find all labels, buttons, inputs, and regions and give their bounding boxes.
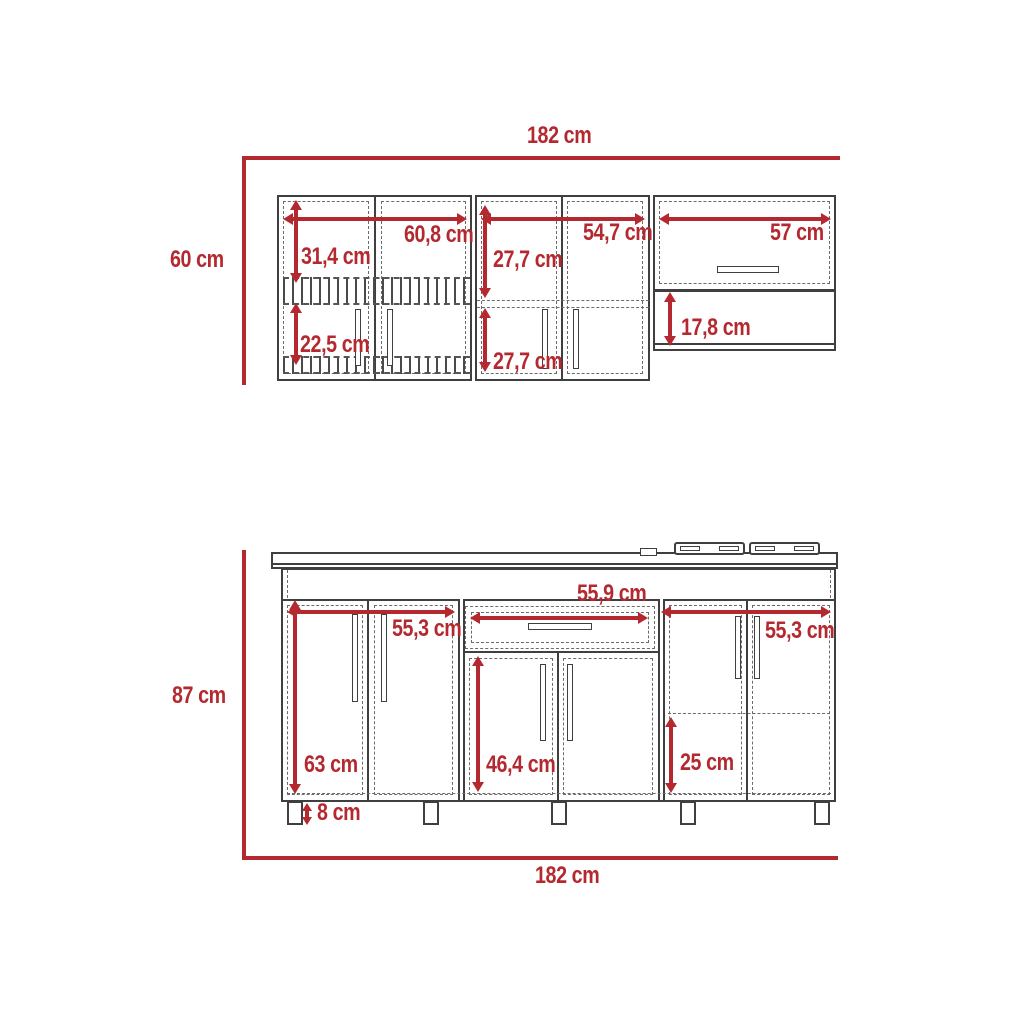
dim-arrow-mid-bottom-height (483, 318, 487, 362)
lower-width-extent-line (242, 856, 838, 860)
base-strip-dashed-left (287, 570, 288, 598)
cabinet-leg-1 (287, 801, 303, 825)
base-left-door2-handle (381, 614, 387, 702)
dim-label-mid-bottom-height: 27,7 cm (493, 350, 562, 374)
dim-label-left-bottom-height: 22,5 cm (300, 333, 369, 357)
dim-arrow-left-top-height (294, 210, 298, 273)
cabinet-leg-2 (423, 801, 439, 825)
cabinet-leg-5 (814, 801, 830, 825)
base-bottom-dashed-line (287, 793, 831, 794)
lower-height-extent-line (242, 550, 246, 860)
upper-total-height-label: 60 cm (170, 248, 224, 272)
base-strip-dashed-right (830, 570, 831, 598)
dim-arrow-base-left-height (293, 610, 297, 784)
upper-middle-shelf-dashed-line2 (477, 307, 649, 308)
dim-arrow-left-bottom-height (294, 313, 298, 355)
dish-rack-lower-band (283, 356, 471, 374)
dim-arrow-right-shelf-height (669, 727, 673, 783)
upper-middle-door2-handle (573, 309, 579, 369)
dim-label-mid-top-height: 27,7 cm (493, 248, 562, 272)
dim-label-left-width: 60,8 cm (404, 223, 473, 247)
base-right-door1-handle (735, 616, 741, 679)
dim-label-base-left-height: 63 cm (304, 753, 358, 777)
upper-right-flap-handle (717, 266, 779, 273)
dim-arrow-base-right-width (671, 610, 821, 614)
base-middle-door1-handle (540, 664, 546, 741)
dim-arrow-base-left-width (297, 610, 445, 614)
dim-label-drawer-width: 55,9 cm (577, 582, 646, 606)
dim-label-left-top-height: 31,4 cm (301, 245, 370, 269)
dim-arrow-leg-height (305, 811, 309, 817)
base-middle-door-divider (557, 652, 559, 802)
countertop-edge-line (273, 563, 836, 565)
dim-label-right-shelf-height: 25 cm (680, 751, 734, 775)
dim-label-mid-door-height: 46,4 cm (486, 753, 555, 777)
drawer-handle (528, 623, 592, 630)
upper-middle-shelf-dashed-line1 (477, 300, 649, 301)
base-middle-door2-dashed (563, 658, 653, 795)
cabinet-leg-3 (551, 801, 567, 825)
dim-label-base-right-width: 55,3 cm (765, 619, 834, 643)
base-middle-door2-handle (567, 664, 573, 741)
base-right-shelf-dashed-line (668, 713, 830, 714)
cabinet-dimension-diagram: 182 cm 60 cm 60,8 cm 31,4 (0, 0, 1024, 1024)
upper-total-width-label: 182 cm (527, 124, 591, 148)
upper-width-extent-line (242, 156, 840, 160)
dim-label-leg-height: 8 cm (317, 801, 360, 825)
dim-label-base-left-width: 55,3 cm (392, 617, 461, 641)
cabinet-leg-4 (680, 801, 696, 825)
lower-total-width-label: 182 cm (535, 864, 599, 888)
upper-left-door2-handle (387, 309, 393, 366)
base-right-door2-handle (754, 616, 760, 679)
dim-label-mid-width: 54,7 cm (583, 221, 652, 245)
lower-total-height-label: 87 cm (172, 684, 226, 708)
base-left-door1-handle (352, 614, 358, 702)
dim-arrow-drawer-width (480, 616, 638, 620)
dim-arrow-right-shelf-height (668, 302, 672, 336)
cooktop-burner-left (674, 542, 745, 555)
dim-label-right-shelf-height: 17,8 cm (681, 316, 750, 340)
upper-height-extent-line (242, 156, 246, 385)
upper-right-shelf-bottom-line (655, 343, 834, 345)
base-right-door-divider (746, 599, 748, 802)
drawer-bottom-line (463, 651, 660, 653)
cooktop-control (640, 548, 657, 556)
base-left-door-divider (367, 599, 369, 802)
dim-label-right-width: 57 cm (770, 221, 824, 245)
cooktop-burner-right (749, 542, 820, 555)
dim-arrow-mid-door-height (476, 666, 480, 782)
dish-rack-upper-band (283, 277, 470, 305)
dim-arrow-mid-top-height (483, 215, 487, 288)
